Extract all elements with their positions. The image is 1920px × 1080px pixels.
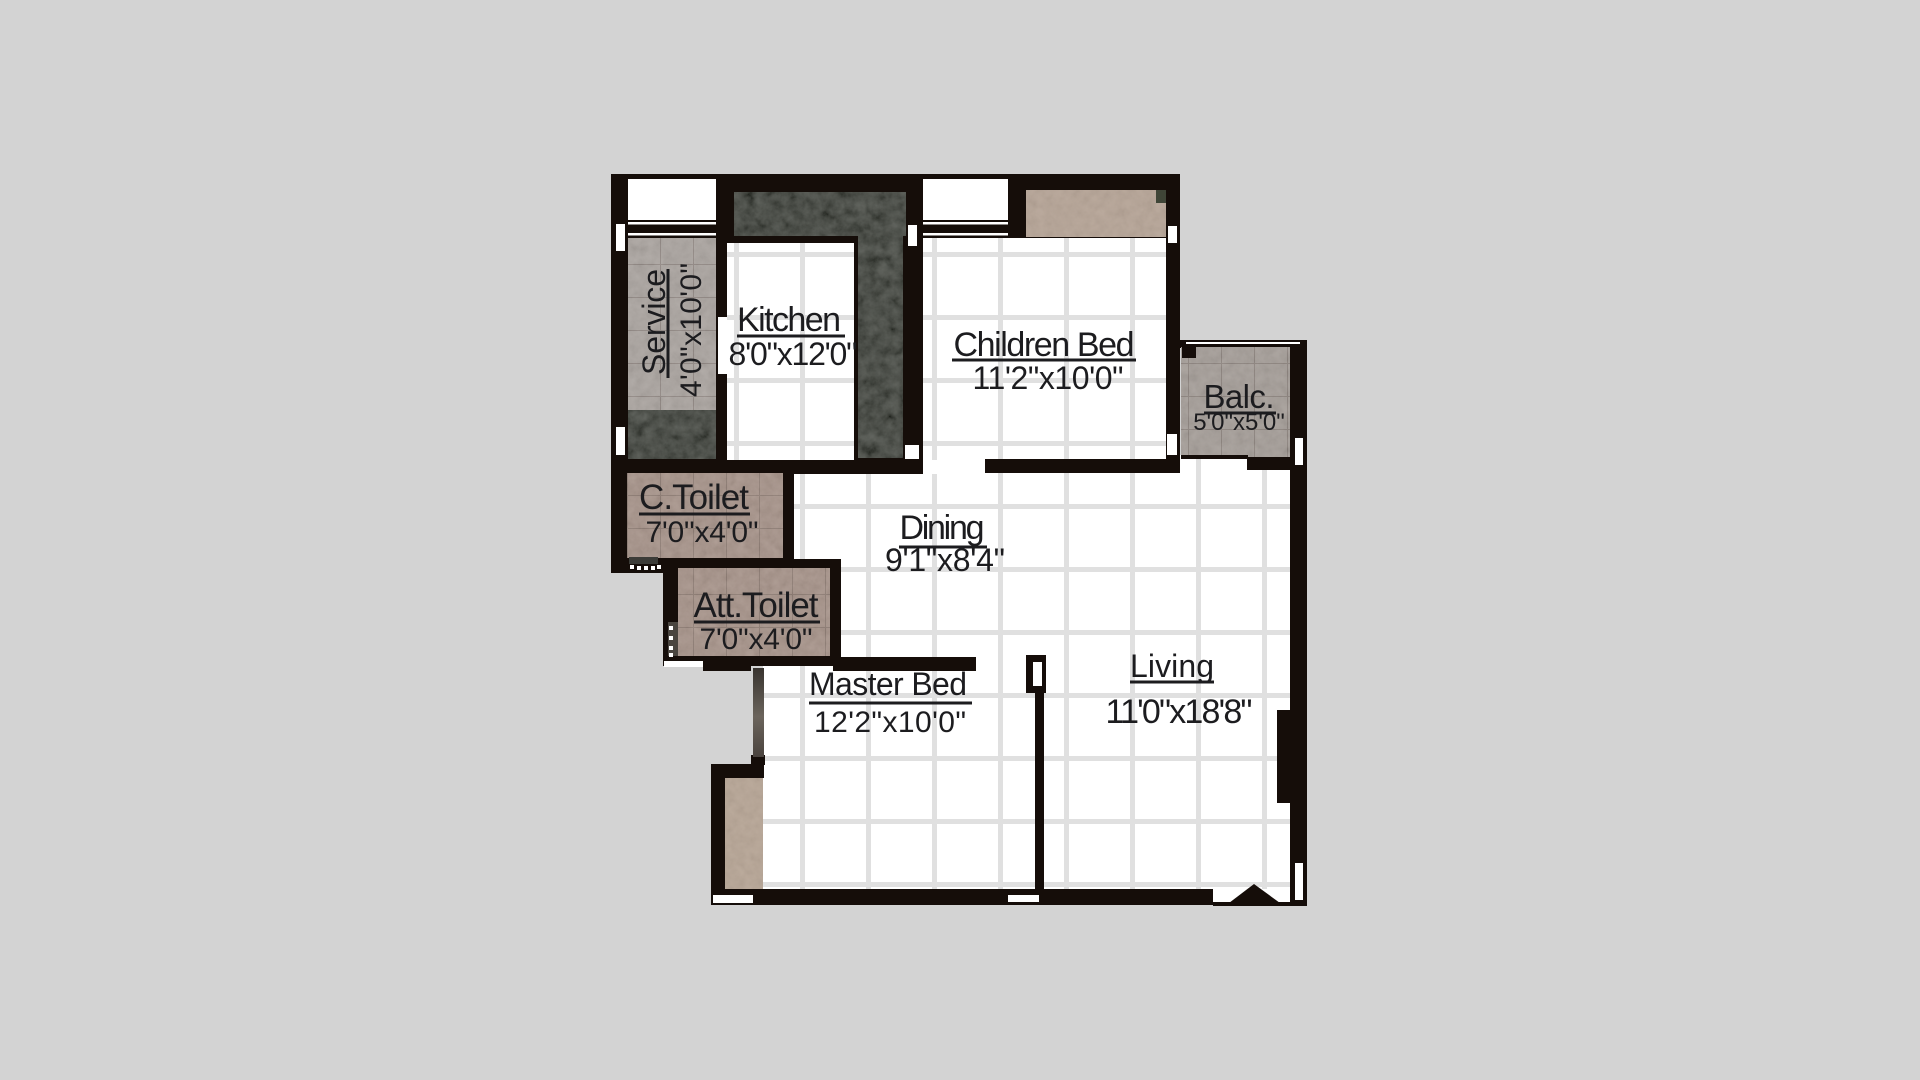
svg-text:Master Bed: Master Bed <box>809 666 967 702</box>
svg-text:11'0"x18'8": 11'0"x18'8" <box>1106 693 1253 731</box>
svg-text:12'2"x10'0": 12'2"x10'0" <box>814 706 966 739</box>
svg-text:7'0"x4'0": 7'0"x4'0" <box>700 623 813 656</box>
svg-text:C.Toilet: C.Toilet <box>639 478 749 517</box>
svg-text:8'0"x12'0": 8'0"x12'0" <box>729 336 858 372</box>
svg-text:Children Bed: Children Bed <box>954 326 1135 364</box>
svg-text:4'0"x10'0": 4'0"x10'0" <box>675 263 708 397</box>
svg-text:7'0"x4'0": 7'0"x4'0" <box>646 516 759 549</box>
svg-text:Living: Living <box>1130 648 1214 684</box>
svg-text:11'2"x10'0": 11'2"x10'0" <box>973 360 1124 396</box>
svg-text:Kitchen: Kitchen <box>737 301 841 339</box>
svg-text:Att.Toilet: Att.Toilet <box>694 586 819 625</box>
